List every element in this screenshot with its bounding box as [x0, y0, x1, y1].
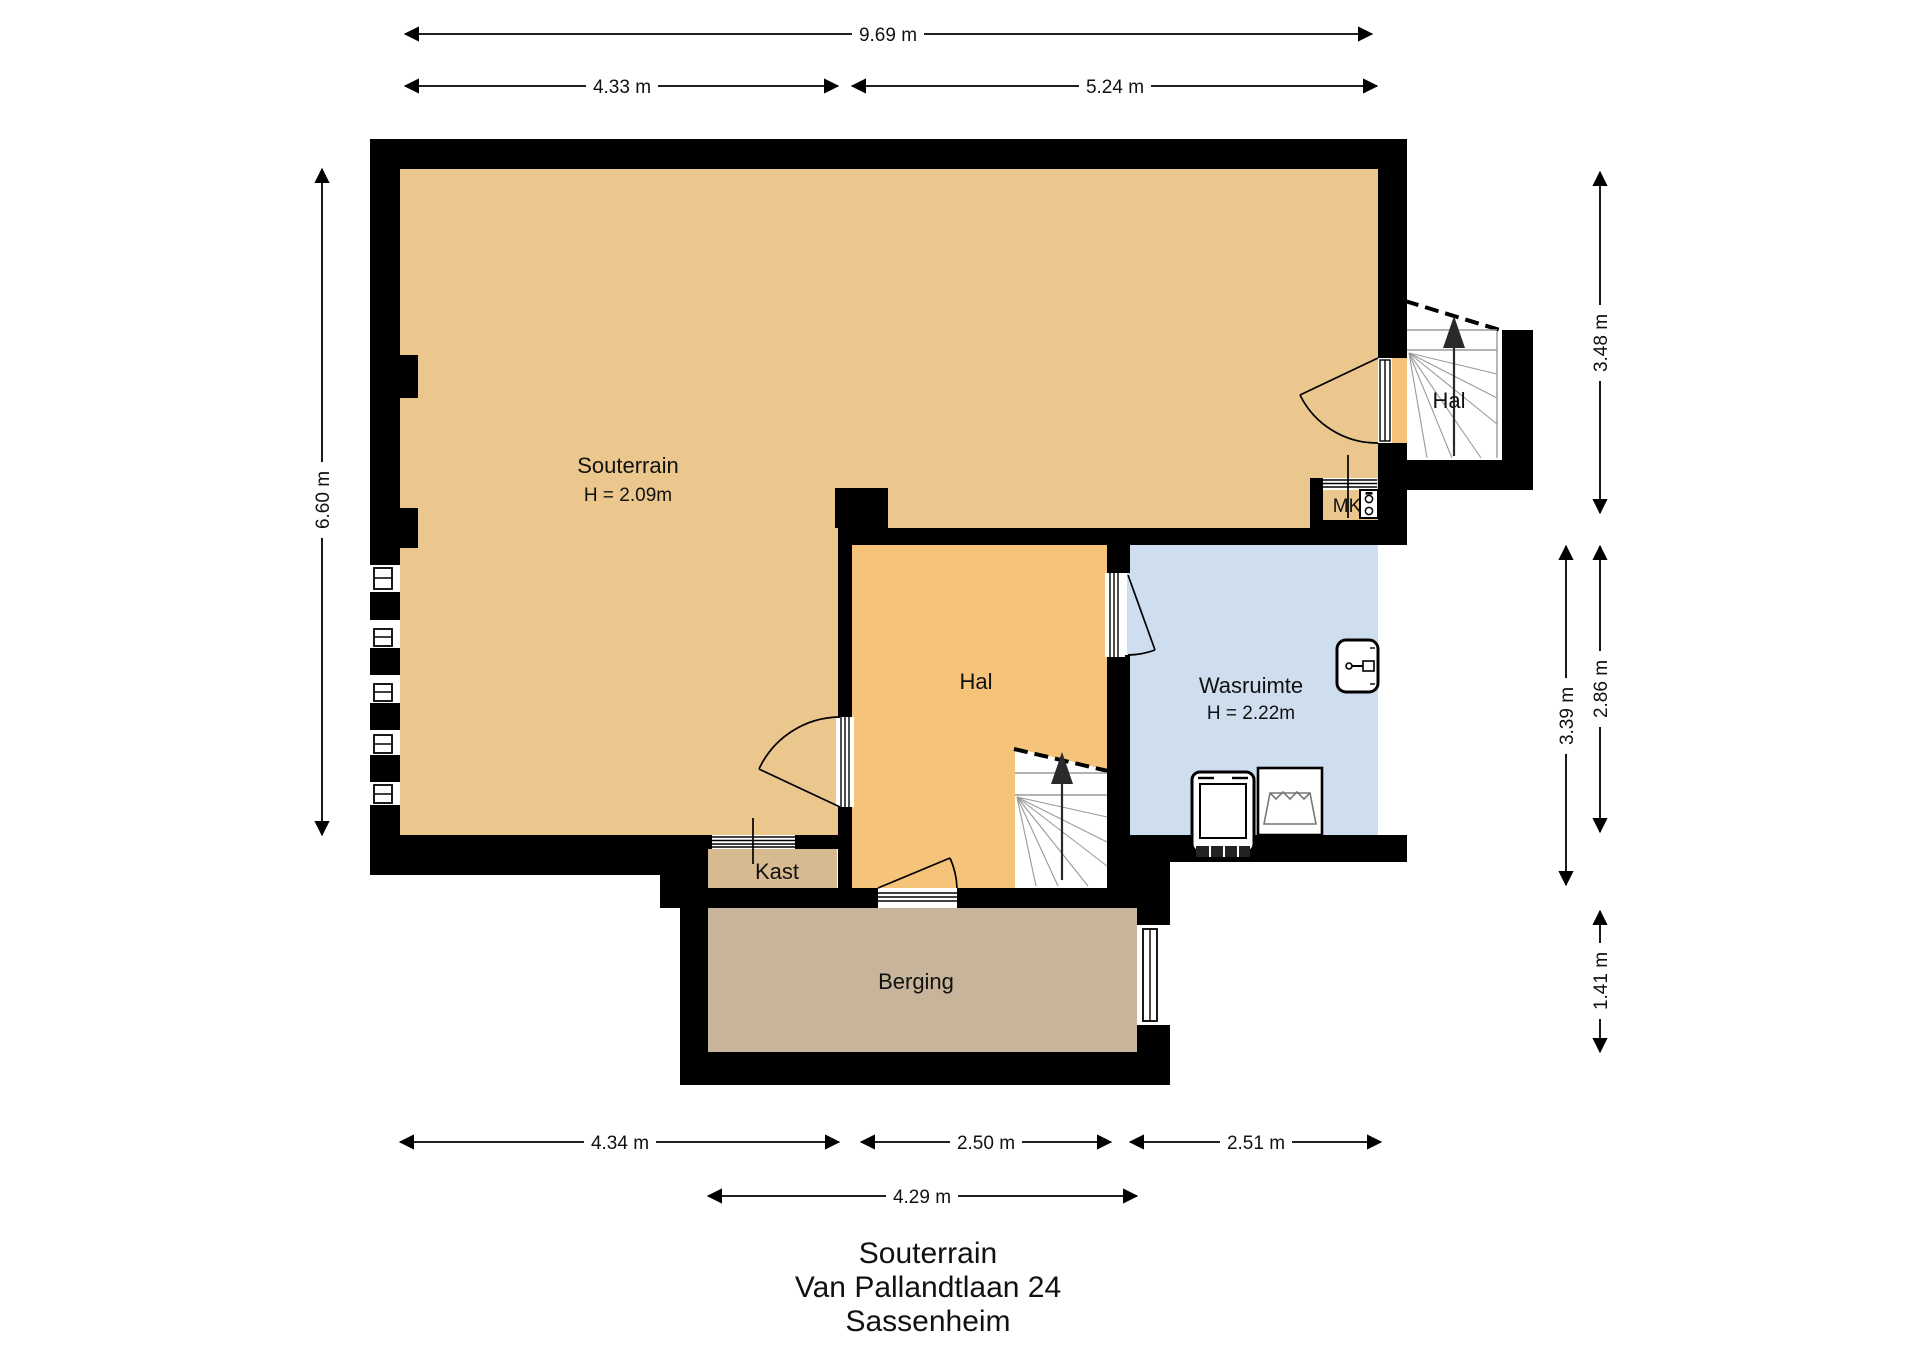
dim-right-lower: 1.41 m — [1588, 911, 1612, 1052]
berging-label: Berging — [878, 969, 954, 994]
dim-label: 4.33 m — [593, 77, 651, 98]
sink-icon — [1337, 640, 1378, 692]
dim-top-right: 5.24 m — [852, 74, 1377, 98]
dim-top-total: 9.69 m — [405, 22, 1372, 46]
dim-label: 2.50 m — [957, 1133, 1015, 1154]
title-floor: Souterrain — [859, 1237, 997, 1270]
wing-door-frame — [1378, 358, 1392, 443]
vent-window-icon — [366, 783, 400, 805]
dim-bottom-middle: 2.50 m — [861, 1130, 1111, 1154]
dim-label: 3.39 m — [1557, 687, 1578, 745]
dim-bottom-right: 2.51 m — [1130, 1130, 1381, 1154]
floor-plan: 9.69 m 4.33 m 5.24 m 6.60 m 3.48 m — [0, 0, 1920, 1358]
dim-label: 1.41 m — [1591, 952, 1612, 1010]
vent-window-icon — [366, 565, 400, 592]
vent-window-icon — [366, 627, 400, 648]
room-fills — [400, 169, 1502, 1052]
hal-wasruimte-door-frame — [1105, 573, 1125, 657]
souterrain-height-label: H = 2.09m — [584, 485, 672, 506]
souterrain-hal-door-frame — [836, 717, 854, 807]
vent-window-icon — [366, 733, 400, 755]
title-address: Van Pallandtlaan 24 — [795, 1271, 1061, 1304]
vent-window-icon — [366, 682, 400, 703]
souterrain-label: Souterrain — [577, 453, 679, 478]
dim-left-height: 6.60 m — [310, 169, 334, 835]
dim-label: 3.48 m — [1591, 314, 1612, 372]
wasruimte-height-label: H = 2.22m — [1207, 703, 1295, 724]
dim-right-upper: 3.48 m — [1588, 172, 1612, 513]
hal-berging-door-frame — [878, 888, 957, 908]
dim-label: 4.34 m — [591, 1133, 649, 1154]
dim-right-middle-inner: 3.39 m — [1554, 546, 1578, 885]
dim-bottom-berging: 4.29 m — [708, 1184, 1137, 1208]
mk-label: MK — [1333, 496, 1362, 517]
berging-window-icon — [1137, 925, 1170, 1025]
dim-bottom-left: 4.34 m — [400, 1130, 839, 1154]
title-city: Sassenheim — [845, 1305, 1010, 1338]
dim-label: 9.69 m — [859, 25, 917, 46]
stair-hal-label: Hal — [1432, 388, 1465, 413]
dim-label: 5.24 m — [1086, 77, 1144, 98]
dim-label: 2.86 m — [1591, 660, 1612, 718]
kast-label: Kast — [755, 859, 799, 884]
wing-door-opening — [1392, 358, 1407, 443]
laundry-basket-icon — [1258, 768, 1322, 835]
hal-label: Hal — [959, 669, 992, 694]
dim-right-middle-outer: 2.86 m — [1588, 546, 1612, 832]
dim-label: 2.51 m — [1227, 1133, 1285, 1154]
washing-machine-icon — [1192, 772, 1254, 857]
title-block: Souterrain Van Pallandtlaan 24 Sassenhei… — [795, 1237, 1061, 1338]
dim-label: 4.29 m — [893, 1187, 951, 1208]
wasruimte-label: Wasruimte — [1199, 673, 1303, 698]
dim-label: 6.60 m — [313, 471, 334, 529]
meter-box-icon — [1360, 490, 1378, 518]
dim-top-left: 4.33 m — [405, 74, 838, 98]
